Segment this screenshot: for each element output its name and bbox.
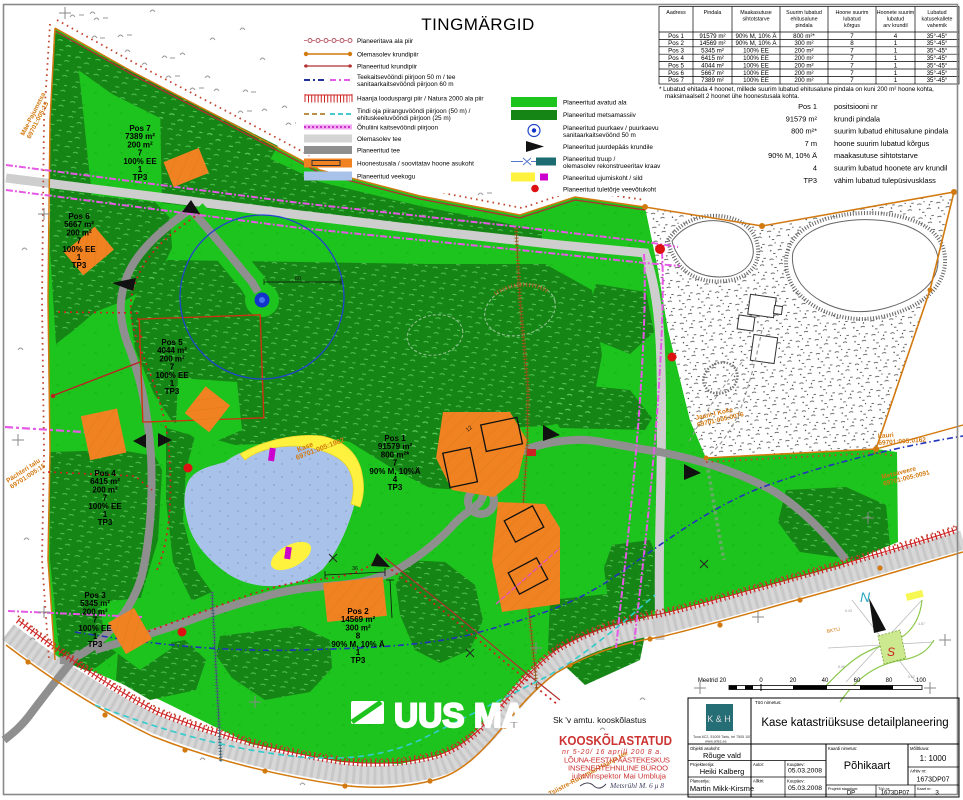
svg-text:90% M, 10% Ä: 90% M, 10% Ä xyxy=(736,40,778,47)
svg-text:Pos 1: Pos 1 xyxy=(798,102,817,111)
svg-text:Olemasolev tee: Olemasolev tee xyxy=(357,136,402,143)
svg-text:5.62: 5.62 xyxy=(908,675,915,679)
svg-text:100% EE: 100% EE xyxy=(743,48,769,55)
svg-text:Metsrühl M. 6 μ 8: Metsrühl M. 6 μ 8 xyxy=(609,781,664,790)
svg-text:Tooa 6C2, 51005 Tartu, tel 7: Tooa 6C2, 51005 Tartu, tel 7505 100 xyxy=(693,735,751,739)
svg-text:S: S xyxy=(887,645,895,659)
svg-text:90% M, 10% Ä: 90% M, 10% Ä xyxy=(768,151,817,160)
svg-text:Pindala: Pindala xyxy=(704,10,722,16)
svg-text:800 m²*: 800 m²* xyxy=(791,127,817,136)
svg-text:Planeeritud tuletõrje veevõtuk: Planeeritud tuletõrje veevõtukoht xyxy=(563,187,656,194)
svg-text:60: 60 xyxy=(854,678,861,684)
svg-text:Õhuliini kaitsevööndi piirjoon: Õhuliini kaitsevööndi piirjoon xyxy=(357,123,438,132)
svg-text:Põhikaart: Põhikaart xyxy=(844,760,890,772)
svg-text:DP: DP xyxy=(847,791,855,797)
svg-text:Kaart nr:: Kaart nr: xyxy=(917,787,932,791)
svg-text:8: 8 xyxy=(850,40,854,47)
svg-text:Lubatudkatusekalletevahemik: Lubatudkatusekalletevahemik xyxy=(922,10,953,29)
svg-text:3: 3 xyxy=(935,790,939,797)
svg-text:Pos 5: Pos 5 xyxy=(668,62,684,69)
svg-text:Allkiri:: Allkiri: xyxy=(753,779,764,784)
svg-text:Martin Mikk-Kirsme: Martin Mikk-Kirsme xyxy=(690,784,754,793)
svg-text:35°-45°: 35°-45° xyxy=(927,62,948,69)
svg-text:Autor:: Autor: xyxy=(753,762,764,767)
svg-text:suurim lubatud ehitusalune pin: suurim lubatud ehitusalune pindala xyxy=(834,127,949,136)
svg-text:1673DP07: 1673DP07 xyxy=(916,777,949,784)
svg-text:05.03.2008: 05.03.2008 xyxy=(788,768,822,775)
svg-text:35°-45°: 35°-45° xyxy=(927,70,948,77)
svg-text:7: 7 xyxy=(850,70,854,77)
svg-text:Planeeritud krundipiir: Planeeritud krundipiir xyxy=(357,64,418,71)
svg-text:7: 7 xyxy=(850,55,854,62)
svg-text:Planeeritud avatud ala: Planeeritud avatud ala xyxy=(563,100,627,107)
svg-text:7: 7 xyxy=(850,33,854,40)
svg-text:www.artes.ee: www.artes.ee xyxy=(705,740,727,744)
svg-text:35°-45°: 35°-45° xyxy=(927,48,948,55)
svg-text:100% EE: 100% EE xyxy=(743,55,769,62)
svg-text:Aadress: Aadress xyxy=(666,10,686,16)
svg-text:800 m²*: 800 m²* xyxy=(793,33,815,40)
svg-text:200 m²: 200 m² xyxy=(794,70,813,77)
svg-text:Pos 7: Pos 7 xyxy=(668,77,684,84)
svg-text:juhtivinspektor Mai Umbluja: juhtivinspektor Mai Umbluja xyxy=(571,772,667,781)
svg-text:Mõõtkava:: Mõõtkava: xyxy=(910,746,929,751)
svg-text:4: 4 xyxy=(813,164,817,173)
svg-text:Sk 'v amtu. kooskõlastus: Sk 'v amtu. kooskõlastus xyxy=(553,715,646,725)
svg-text:100% EE: 100% EE xyxy=(743,62,769,69)
svg-text:Tindi oja piiranguvööndi piirj: Tindi oja piiranguvööndi piirjoon (50 m)… xyxy=(357,108,471,115)
svg-text:7: 7 xyxy=(850,62,854,69)
svg-text:20: 20 xyxy=(790,678,797,684)
svg-text:Haanja looduspargi piir / Natu: Haanja looduspargi piir / Natura 2000 al… xyxy=(357,96,484,103)
svg-text:Maakasutusesihtotstarve: Maakasutusesihtotstarve xyxy=(740,10,772,22)
svg-text:1673DP07: 1673DP07 xyxy=(881,791,910,797)
svg-text:1: 1 xyxy=(894,77,898,84)
svg-text:maksimaalselt 2 hoonet ühe hoo: maksimaalselt 2 hoonet ühe hoonestusala … xyxy=(665,93,799,100)
svg-text:Hoonete suurimlubatudarv krund: Hoonete suurimlubatudarv krundil xyxy=(877,10,915,29)
svg-text:Olemasolev krundipiir: Olemasolev krundipiir xyxy=(357,52,419,59)
svg-text:KOOSKÕLASTATUD: KOOSKÕLASTATUD xyxy=(559,733,672,748)
svg-text:Planeeritud truup /: Planeeritud truup / xyxy=(563,156,615,163)
svg-text:Kuupäev:: Kuupäev: xyxy=(787,779,805,784)
svg-text:TINGMÄRGID: TINGMÄRGID xyxy=(421,15,535,34)
svg-text:40: 40 xyxy=(822,678,829,684)
svg-text:hoone suurim lubatud kõrgus: hoone suurim lubatud kõrgus xyxy=(834,139,930,148)
svg-text:Suurim lubatudehitusalunepinda: Suurim lubatudehitusalunepindala xyxy=(786,10,822,29)
svg-text:7: 7 xyxy=(850,48,854,55)
svg-text:Pos 2: Pos 2 xyxy=(668,40,684,47)
svg-text:Pächteri talu69701:005:15: Pächteri talu69701:005:15 xyxy=(5,457,47,491)
svg-text:05.03.2008: 05.03.2008 xyxy=(788,785,822,792)
svg-text:36: 36 xyxy=(352,566,358,572)
svg-text:Pos 4: Pos 4 xyxy=(668,55,684,62)
svg-text:Planeeritud metsamassiiv: Planeeritud metsamassiiv xyxy=(563,112,637,119)
svg-text:Pos 6: Pos 6 xyxy=(668,70,684,77)
svg-text:4044 m²: 4044 m² xyxy=(701,62,724,69)
svg-text:K & H: K & H xyxy=(707,714,731,724)
svg-text:200 m²: 200 m² xyxy=(794,48,813,55)
svg-text:Hoone suurimlubatudkõrgus: Hoone suurimlubatudkõrgus xyxy=(836,10,870,29)
svg-text:Planeeritava ala piir: Planeeritava ala piir xyxy=(357,38,414,45)
svg-text:krundi pindala: krundi pindala xyxy=(834,114,881,123)
svg-text:200 m²: 200 m² xyxy=(794,62,813,69)
svg-text:5.43: 5.43 xyxy=(845,609,852,613)
svg-text:200 m²: 200 m² xyxy=(794,55,813,62)
svg-text:Planeeritud veekogu: Planeeritud veekogu xyxy=(357,174,416,181)
svg-text:BKTU: BKTU xyxy=(826,627,841,635)
svg-text:N: N xyxy=(860,589,871,605)
svg-text:Pos 3: Pos 3 xyxy=(668,48,684,55)
svg-text:sanitaarkaitsevööndi piirjoon: sanitaarkaitsevööndi piirjoon 60 m xyxy=(357,81,454,88)
svg-text:14569 m²: 14569 m² xyxy=(699,40,725,47)
svg-text:Lauri69701:005:0162: Lauri69701:005:0162 xyxy=(878,430,927,447)
svg-text:Rõuge vald: Rõuge vald xyxy=(703,751,741,760)
svg-text:7 m: 7 m xyxy=(805,139,817,148)
svg-text:0: 0 xyxy=(759,678,763,684)
svg-text:Planeerija:: Planeerija: xyxy=(690,779,710,784)
svg-text:Kaardi nimetus:: Kaardi nimetus: xyxy=(828,746,857,751)
svg-text:Teekaitsevööndi piirjoon 50 m: Teekaitsevööndi piirjoon 50 m / tee xyxy=(357,74,456,81)
svg-text:7: 7 xyxy=(850,77,854,84)
svg-text:7389 m²: 7389 m² xyxy=(701,77,724,84)
svg-text:1: 1 xyxy=(894,55,898,62)
svg-text:Hoonestusala / soovitatav hoon: Hoonestusala / soovitatav hoone asukoht xyxy=(357,161,474,168)
svg-text:Mäe-Pajumetsa69701:005:15: Mäe-Pajumetsa69701:005:15 xyxy=(20,91,54,140)
svg-text:Heiki Kalberg: Heiki Kalberg xyxy=(700,767,745,776)
svg-text:60: 60 xyxy=(295,276,301,282)
svg-text:80: 80 xyxy=(886,678,893,684)
svg-text:Planeeritud puurkaev / puurkae: Planeeritud puurkaev / puurkaevu xyxy=(563,125,659,132)
svg-text:1: 1 xyxy=(894,40,898,47)
svg-text:Kuupäev:: Kuupäev: xyxy=(787,762,805,767)
svg-text:100% EE: 100% EE xyxy=(743,70,769,77)
svg-text:Töö nimetus:: Töö nimetus: xyxy=(755,700,782,705)
svg-text:Pos 1: Pos 1 xyxy=(668,33,684,40)
svg-text:35°-45°: 35°-45° xyxy=(927,55,948,62)
svg-text:91579 m²: 91579 m² xyxy=(786,114,818,123)
svg-text:200 m²: 200 m² xyxy=(794,77,813,84)
svg-text:Planeeritud tee: Planeeritud tee xyxy=(357,148,400,155)
svg-text:1: 1 xyxy=(894,48,898,55)
svg-text:5667 m²: 5667 m² xyxy=(701,70,724,77)
svg-text:91579 m²: 91579 m² xyxy=(699,33,725,40)
svg-text:TP3: TP3 xyxy=(803,176,817,185)
svg-text:4.87: 4.87 xyxy=(918,622,925,626)
svg-text:Planeeritud juurdepääs krundil: Planeeritud juurdepääs krundile xyxy=(563,144,653,151)
svg-text:Kase katastriüksuse detailplan: Kase katastriüksuse detailplaneering xyxy=(761,717,948,729)
svg-text:positsiooni nr: positsiooni nr xyxy=(834,102,878,111)
svg-text:6415 m²: 6415 m² xyxy=(701,55,724,62)
svg-text:Arhiiv nr:: Arhiiv nr: xyxy=(910,769,927,774)
svg-text:suurim lubatud hoonete arv kru: suurim lubatud hoonete arv krundil xyxy=(834,164,948,173)
svg-text:maakasutuse sihtotstarve: maakasutuse sihtotstarve xyxy=(834,151,918,160)
svg-text:90% M, 10% Ä: 90% M, 10% Ä xyxy=(736,33,778,40)
svg-text:olemasolev rekonstrueeritav kr: olemasolev rekonstrueeritav kraav xyxy=(563,163,661,170)
svg-text:vähim lubatud tulepüsivusklass: vähim lubatud tulepüsivusklass xyxy=(834,176,936,185)
svg-text:Planeeritud ujumiskoht / sild: Planeeritud ujumiskoht / sild xyxy=(563,175,643,182)
svg-text:1: 1 xyxy=(894,62,898,69)
svg-text:5345 m²: 5345 m² xyxy=(701,48,724,55)
svg-text:4: 4 xyxy=(894,33,898,40)
svg-text:Meetrid 20: Meetrid 20 xyxy=(698,678,727,684)
svg-text:35°-45°: 35°-45° xyxy=(927,77,948,84)
svg-text:8.06: 8.06 xyxy=(838,665,845,669)
svg-text:sanitaarkaitsevöönd 50 m: sanitaarkaitsevöönd 50 m xyxy=(563,132,636,139)
svg-text:35°-45°: 35°-45° xyxy=(927,40,948,47)
svg-text:300 m²: 300 m² xyxy=(794,40,813,47)
svg-text:UUS MAA: UUS MAA xyxy=(394,697,550,735)
svg-text:1: 1 xyxy=(894,70,898,77)
svg-text:ehituskeeluvööndi piirjoon (25: ehituskeeluvööndi piirjoon (25 m) xyxy=(357,115,451,122)
svg-text:* Lubatud ehitada 4 hoonet, mi: * Lubatud ehitada 4 hoonet, millede suur… xyxy=(659,86,934,93)
svg-text:100: 100 xyxy=(916,678,927,684)
svg-text:35°-45°: 35°-45° xyxy=(927,33,948,40)
svg-text:1: 1000: 1: 1000 xyxy=(920,754,947,763)
svg-text:100% EE: 100% EE xyxy=(743,77,769,84)
